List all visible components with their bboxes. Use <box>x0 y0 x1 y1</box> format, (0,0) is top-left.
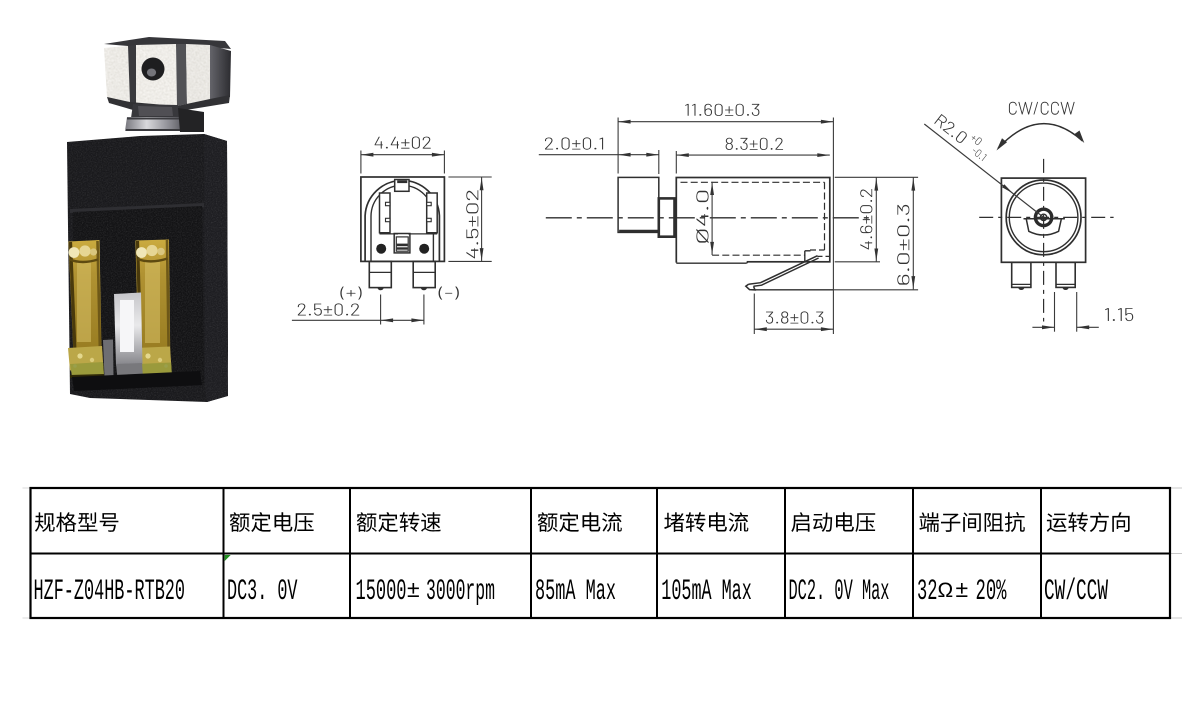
svg-text:±: ± <box>956 576 969 602</box>
svg-text:20%: 20% <box>976 575 1008 609</box>
svg-text:DC3. 0V: DC3. 0V <box>227 575 298 609</box>
svg-text:85mA Max: 85mA Max <box>535 575 616 609</box>
svg-text:DC2. 0V Max: DC2. 0V Max <box>789 575 890 609</box>
svg-text:HZF-Z04HB-RTB20: HZF-Z04HB-RTB20 <box>34 575 186 609</box>
svg-text:±: ± <box>407 576 420 602</box>
svg-text:105mA Max: 105mA Max <box>661 575 752 609</box>
svg-text:CW/CCW: CW/CCW <box>1044 575 1108 609</box>
svg-text:32: 32 <box>917 575 938 609</box>
svg-text:Ω: Ω <box>938 579 954 602</box>
svg-text:15000: 15000 <box>356 575 407 609</box>
svg-text:3000rpm: 3000rpm <box>426 575 495 609</box>
